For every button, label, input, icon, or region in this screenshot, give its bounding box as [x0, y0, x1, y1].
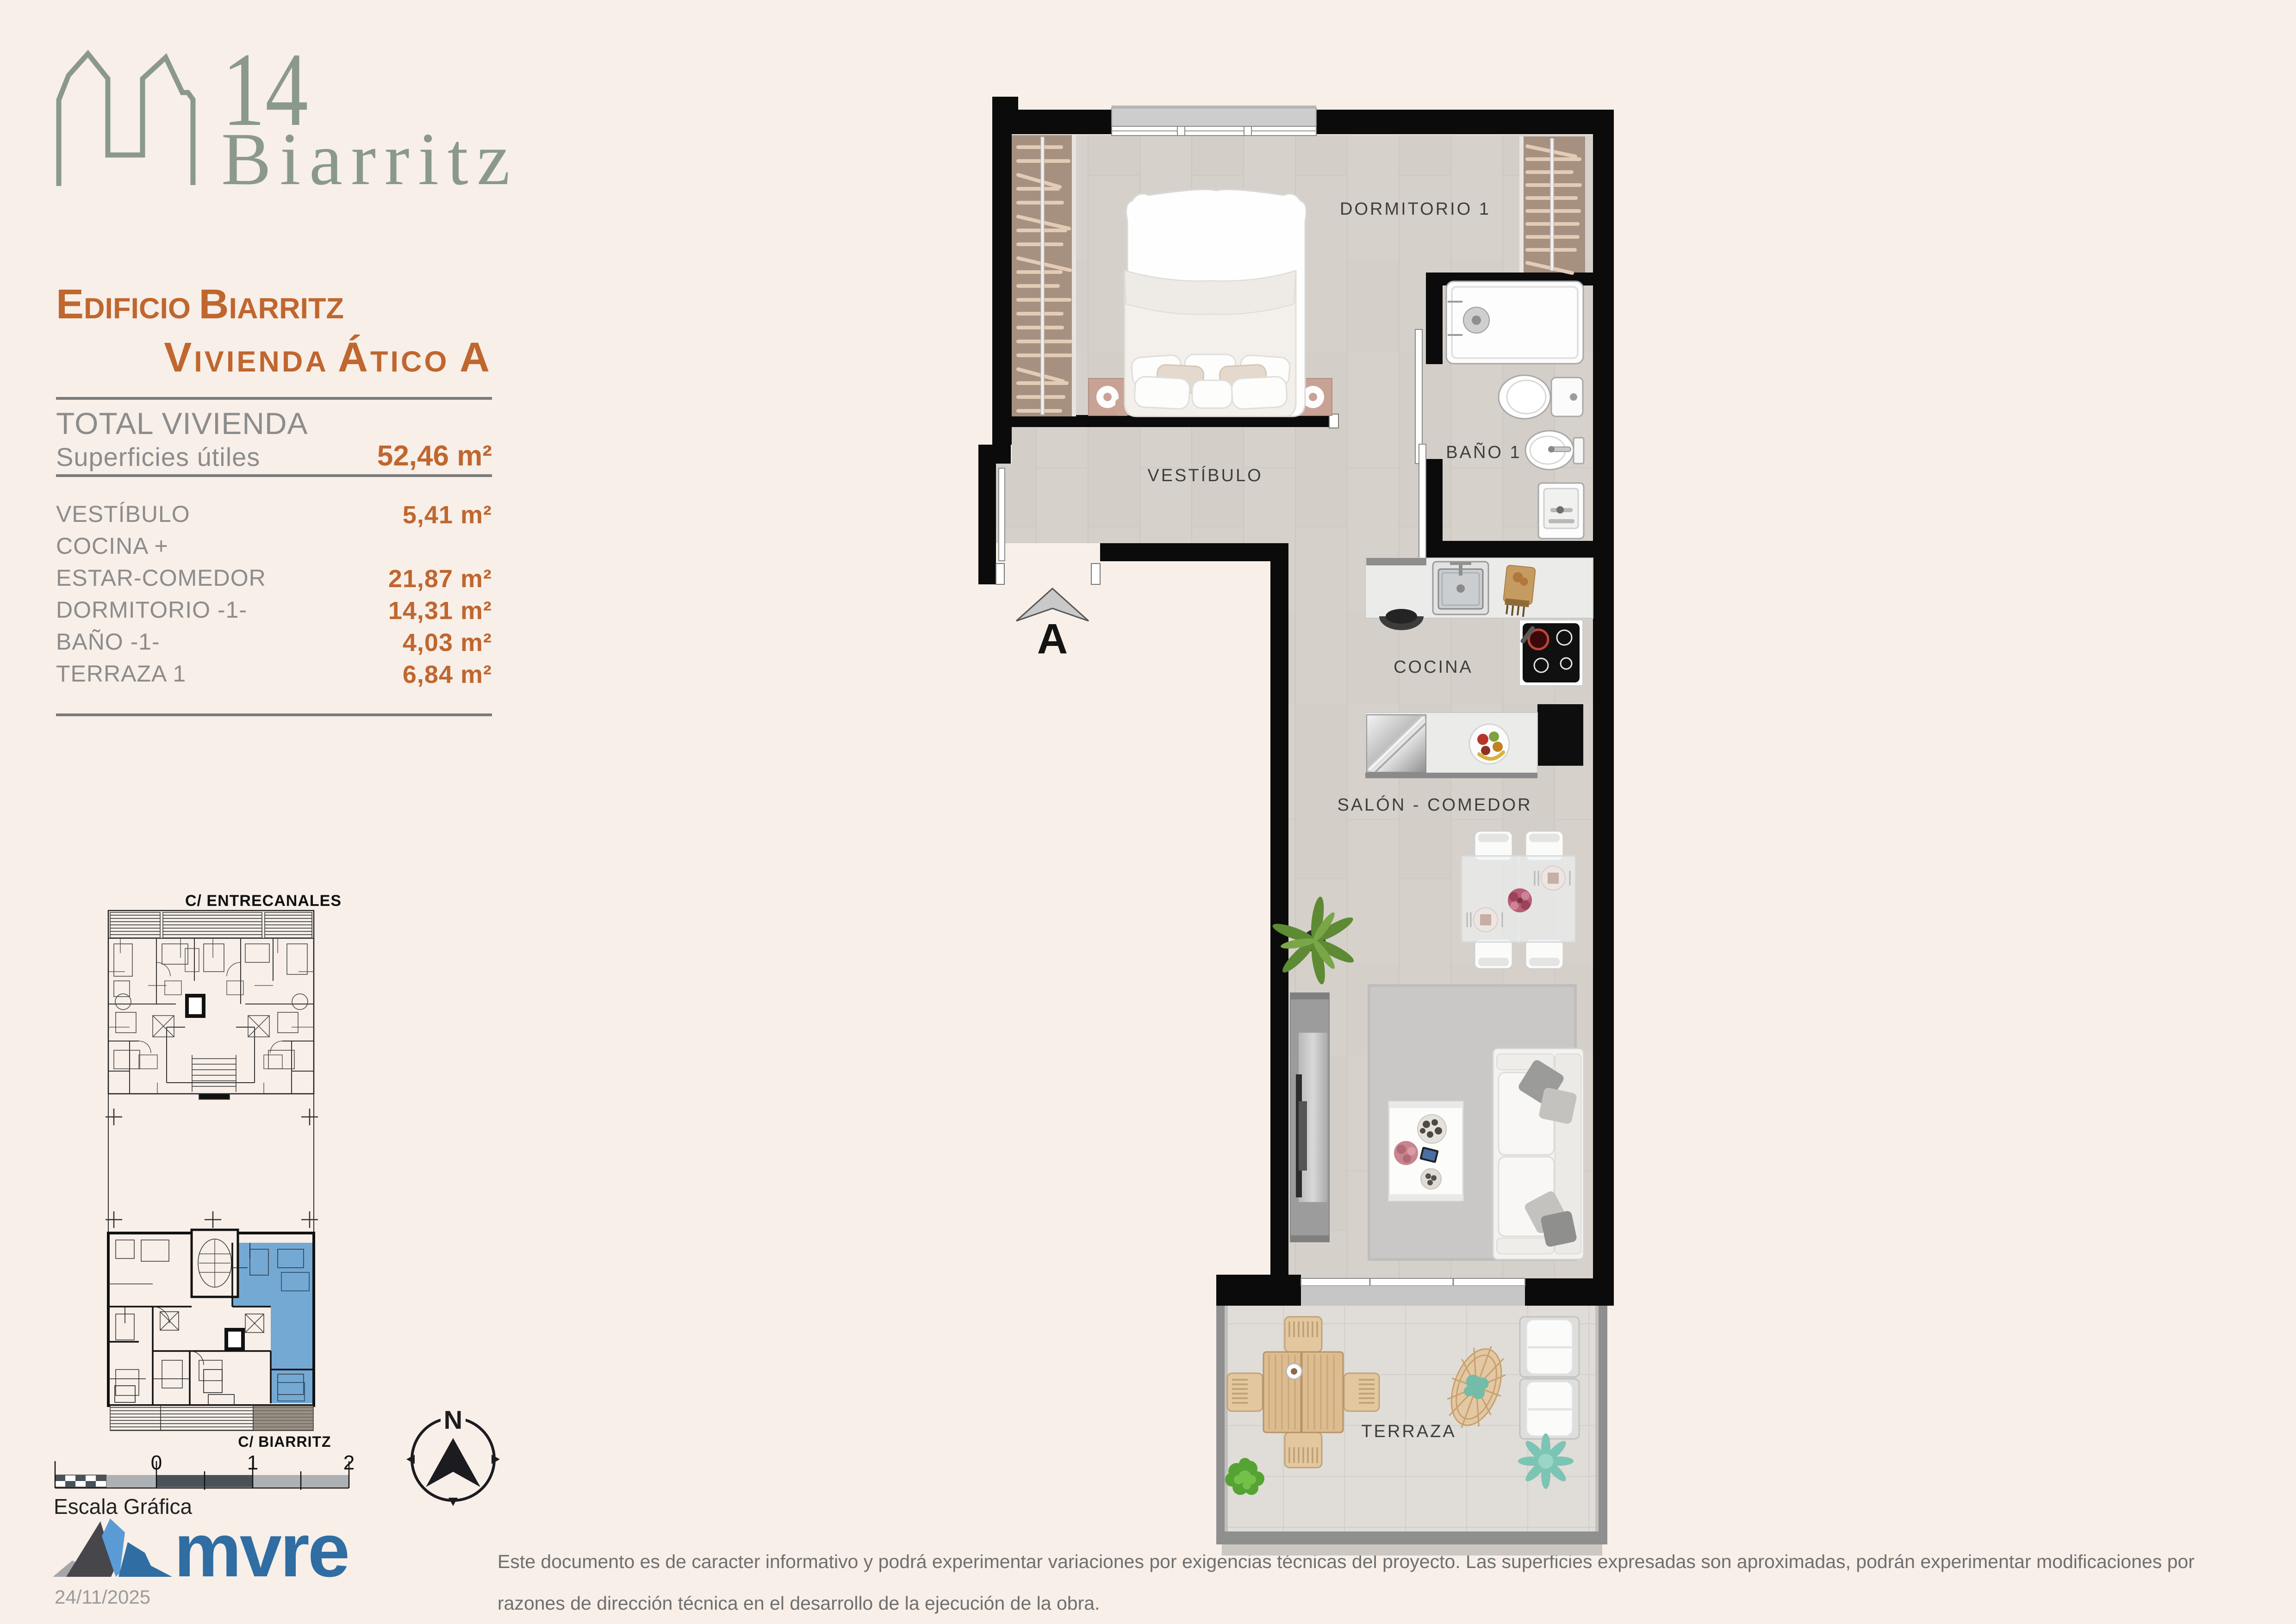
svg-text:SALÓN - COMEDOR: SALÓN - COMEDOR [1337, 795, 1532, 815]
svg-text:Escala Gráfica: Escala Gráfica [54, 1494, 193, 1519]
svg-text:Biarritz: Biarritz [221, 118, 510, 201]
svg-text:COCINA: COCINA [1394, 657, 1473, 677]
svg-text:mvre: mvre [174, 1518, 348, 1593]
svg-text:C/ ENTRECANALES: C/ ENTRECANALES [185, 892, 342, 910]
svg-text:DORMITORIO 1: DORMITORIO 1 [1340, 199, 1491, 219]
svg-text:TERRAZA: TERRAZA [1361, 1422, 1456, 1441]
svg-text:VESTÍBULO: VESTÍBULO [1147, 465, 1263, 485]
svg-text:A: A [1037, 615, 1068, 663]
svg-text:BAÑO 1: BAÑO 1 [1446, 442, 1521, 462]
svg-text:N: N [444, 1405, 462, 1434]
